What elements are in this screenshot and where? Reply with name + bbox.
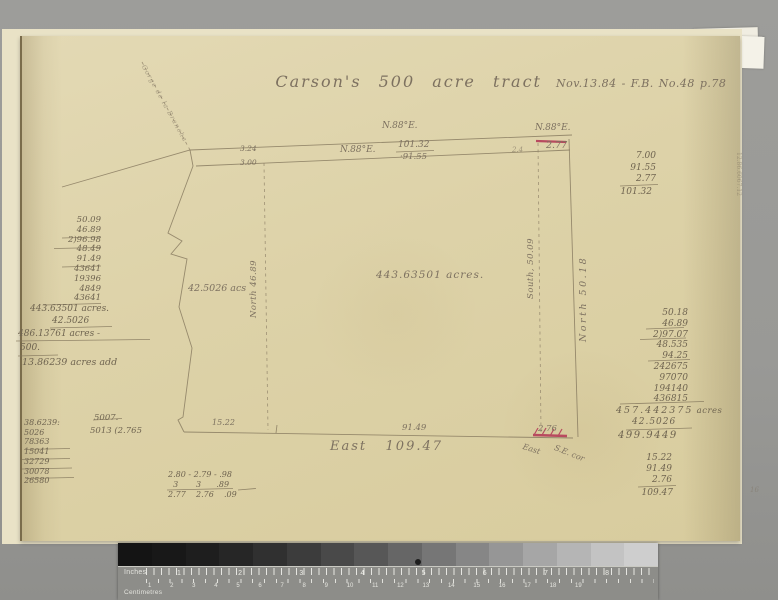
interior-dashed-lines <box>142 62 541 432</box>
list-item: 194140 <box>628 384 688 395</box>
calc-left-area1: 443.63501 acres. <box>30 305 109 315</box>
list-item: 6 <box>483 570 487 577</box>
list-item: 11 <box>372 583 378 589</box>
calc-mid-right-sub: 42.5026 <box>632 418 676 428</box>
list-item: 2 <box>170 583 173 589</box>
edge-small-note: 16 <box>750 487 759 495</box>
list-item: 6 <box>258 583 261 589</box>
gray-patch <box>354 543 388 566</box>
list-item: 26580 <box>24 476 60 486</box>
gray-patch <box>489 543 523 566</box>
list-item: 19 <box>575 583 582 589</box>
calc-mid-right-total: 499.9449 <box>618 430 678 441</box>
corner-top-small-note: 2.4 <box>512 147 523 155</box>
page-title: Carson's 500 acre tractNov.13.84 - F.B. … <box>207 55 726 108</box>
list-item: 7 <box>280 583 283 589</box>
south-mid-label: South, 50.09 <box>527 238 536 299</box>
list-item: 14 <box>448 583 455 589</box>
calc-scratch-a: 5007. <box>94 414 118 423</box>
area-center-label: 443.63501 acres. <box>376 270 484 282</box>
calc-left-stack: 50.0946.892)96.9848.4991.494364119396484… <box>40 216 101 304</box>
bottom-seg2-dist: 91.49 <box>402 424 426 433</box>
calc-scratch-b: 5013 (2.765 <box>90 427 142 436</box>
list-item: 3 <box>192 583 195 589</box>
centimetres-label: Centimetres <box>124 589 162 596</box>
edge-catalog-note: 12.86.6067.12 <box>734 152 741 196</box>
list-item: 2.76 <box>628 475 672 486</box>
gray-patch <box>422 543 456 566</box>
calc-subtraction-table: 2.80 - 2.79 - .98 3 3 .892.77 2.76 .09 <box>168 470 237 500</box>
list-item: 5026 <box>24 428 60 438</box>
list-item: 32729 <box>24 457 60 467</box>
list-item: 9 <box>325 583 328 589</box>
list-item: 2.77 <box>610 174 656 186</box>
distance-inner-alt: ·91.55 <box>400 153 427 162</box>
gray-patch <box>557 543 591 566</box>
gray-patch <box>152 543 186 566</box>
corner-bottom-right-dist: 2.76 <box>538 425 557 434</box>
gray-patch <box>321 543 355 566</box>
scanned-survey-page: Carson's 500 acre tractNov.13.84 - F.B. … <box>0 0 778 600</box>
east-boundary-label: East 109.47 <box>330 440 443 454</box>
list-item: 15 <box>473 583 480 589</box>
gray-patch <box>456 543 490 566</box>
calc-left-area2: 486.13761 acres - <box>18 330 100 340</box>
list-item: 436815 <box>628 394 688 405</box>
ruler-strip: Inches 12345678 123456789101112131415161… <box>118 566 658 600</box>
gray-patch <box>523 543 557 566</box>
list-item: 97070 <box>628 373 688 384</box>
grayscale-step-wedge <box>118 543 658 566</box>
list-item: 48.535 <box>628 340 688 351</box>
calc-lower-left: 38.6239:50267836315041327293007826580 <box>24 418 60 486</box>
list-item: 43641 <box>40 294 101 304</box>
corner-top-right-dist: 2.77 <box>546 141 567 151</box>
cm-numbers: 12345678910111213141516171819 <box>148 583 582 589</box>
list-item: 4 <box>360 570 364 577</box>
list-item: 8 <box>303 583 306 589</box>
offset-upper: 3.24 <box>240 145 257 153</box>
registration-dot <box>415 559 421 565</box>
list-item: 46.89 <box>628 319 688 330</box>
list-item: 16 <box>499 583 506 589</box>
list-item: 10 <box>347 583 354 589</box>
calc-top-right: 7.0091.552.77 <box>610 151 656 186</box>
gray-patch <box>591 543 625 566</box>
title-main: Carson's 500 acre tract <box>275 72 542 91</box>
list-item: 78363 <box>24 437 60 447</box>
list-item: 2.80 - 2.79 - .98 <box>168 470 237 480</box>
list-item: 18 <box>550 583 557 589</box>
list-item: 17 <box>524 583 531 589</box>
list-item: 4 <box>214 583 217 589</box>
list-item: 7 <box>544 570 548 577</box>
north-right-label: North 50.18 <box>579 256 589 342</box>
list-item: 5 <box>236 583 239 589</box>
list-item: 15041 <box>24 447 60 457</box>
list-item: 2)97.07 <box>628 330 688 341</box>
list-item: 8 <box>605 570 609 577</box>
list-item: 5 <box>422 570 426 577</box>
calc-left-500: 500. <box>20 344 40 354</box>
red-corner-marks <box>533 141 567 436</box>
title-fieldbook-ref: Nov.13.84 - F.B. No.48 p.78 <box>556 77 726 90</box>
north-left-label: North 46.89 <box>250 260 259 318</box>
gray-patch <box>287 543 321 566</box>
list-item: 12 <box>397 583 404 589</box>
area-west-label: 42.5026 acs <box>188 284 246 294</box>
list-item: 50.18 <box>628 308 688 319</box>
tract-boundary <box>62 135 578 438</box>
calc-mid-right: 50.1846.892)97.0748.53594.25242675970701… <box>628 308 688 405</box>
list-item: 15.22 <box>628 453 672 464</box>
calc-bottom-right: 15.2291.492.76 <box>628 453 672 486</box>
kodak-calibration-bar: Inches 12345678 123456789101112131415161… <box>118 543 658 600</box>
unit: acres <box>697 406 723 416</box>
list-item: 7.00 <box>610 151 656 163</box>
area-unit: acres <box>693 406 722 416</box>
total-value: 109.47 <box>624 488 673 498</box>
distance-inner: 101.32 <box>398 141 430 151</box>
list-item: 242675 <box>628 362 688 373</box>
list-item: 91.55 <box>610 163 656 175</box>
list-item: 2 <box>238 570 242 577</box>
gray-patch <box>118 543 152 566</box>
inches-label: Inches <box>124 569 146 576</box>
inch-numbers: 12345678 <box>177 570 609 577</box>
list-item: 13 <box>423 583 430 589</box>
calc-left-sub: 42.5026 <box>52 317 89 327</box>
list-item: 3 <box>299 570 303 577</box>
bearing-top-right: N.88°E. <box>535 124 571 134</box>
gray-patch <box>219 543 253 566</box>
calc-top-right-total: 101.32 <box>606 187 652 197</box>
bearing-top-mid: N.88°E. <box>382 122 418 132</box>
offset-lower: 3.00 <box>240 159 257 167</box>
calc-bottom-right-total: 109.47 <box>624 488 673 498</box>
area-value: 457.442375 <box>616 405 693 416</box>
bearing-inner: N.88°E. <box>340 146 376 156</box>
list-item: 38.6239: <box>24 418 60 428</box>
list-item: 30078 <box>24 467 60 477</box>
calc-mid-right-area: 457.442375 acres <box>616 406 722 416</box>
list-item: 2.77 2.76 .09 <box>168 490 237 500</box>
list-item: 1 <box>177 570 181 577</box>
list-item: 3 3 .89 <box>168 480 237 490</box>
calc-left-add: 13.86239 acres add <box>22 358 117 368</box>
list-item: 94.25 <box>628 351 688 362</box>
total-value: 101.32 <box>606 187 652 197</box>
list-item: 91.49 <box>628 464 672 475</box>
gray-patch <box>186 543 220 566</box>
gray-patch <box>624 543 658 566</box>
gray-patch <box>253 543 287 566</box>
bottom-seg1-dist: 15.22 <box>212 419 235 428</box>
